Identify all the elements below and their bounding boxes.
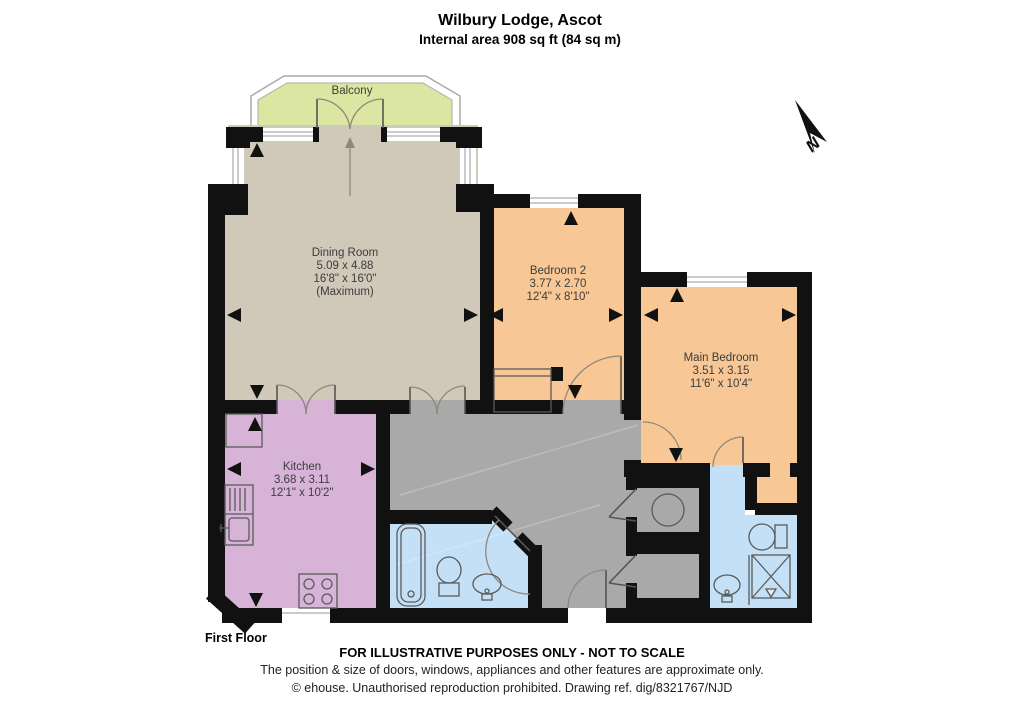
svg-text:(Maximum): (Maximum) bbox=[316, 286, 374, 298]
window bbox=[263, 128, 313, 141]
floor-label: First Floor bbox=[205, 631, 267, 645]
svg-text:3.68 x 3.11: 3.68 x 3.11 bbox=[274, 474, 330, 486]
svg-text:11'6" x 10'4": 11'6" x 10'4" bbox=[690, 378, 752, 390]
svg-text:Dining Room: Dining Room bbox=[312, 247, 378, 259]
footer-note: The position & size of doors, windows, a… bbox=[0, 663, 1024, 677]
room-bedroom-2 bbox=[482, 196, 640, 416]
window bbox=[228, 148, 244, 184]
front-door-opening bbox=[568, 608, 606, 623]
outside-mask bbox=[638, 118, 820, 274]
footer-copyright: © ehouse. Unauthorised reproduction proh… bbox=[0, 681, 1024, 695]
window bbox=[687, 272, 747, 287]
svg-text:12'4" x 8'10": 12'4" x 8'10" bbox=[526, 291, 589, 303]
wardrobe-stub bbox=[551, 367, 563, 381]
svg-text:Kitchen: Kitchen bbox=[283, 461, 321, 473]
window bbox=[387, 128, 440, 141]
balcony-label: Balcony bbox=[332, 85, 373, 97]
window bbox=[460, 148, 476, 184]
svg-text:3.51 x 3.15: 3.51 x 3.15 bbox=[693, 365, 750, 377]
floorplan-page: Wilbury Lodge, Ascot Internal area 908 s… bbox=[0, 0, 1024, 723]
dining-room-label: Dining Room 5.09 x 4.88 16'8" x 16'0" (M… bbox=[312, 247, 378, 298]
svg-text:12'1" x 10'2": 12'1" x 10'2" bbox=[270, 487, 333, 499]
svg-text:Bedroom 2: Bedroom 2 bbox=[530, 265, 586, 277]
room-kitchen bbox=[210, 400, 378, 623]
svg-text:3.77 x 2.70: 3.77 x 2.70 bbox=[530, 278, 587, 290]
outside-mask bbox=[478, 118, 648, 196]
floorplan-drawing: Balcony Dining Room 5.09 x 4.88 16'8" x … bbox=[0, 0, 1024, 723]
window bbox=[530, 194, 578, 208]
svg-text:5.09 x 4.88: 5.09 x 4.88 bbox=[317, 260, 374, 272]
svg-text:Main Bedroom: Main Bedroom bbox=[684, 352, 759, 364]
main-bedroom-label: Main Bedroom 3.51 x 3.15 11'6" x 10'4" bbox=[684, 352, 759, 390]
window bbox=[282, 608, 330, 623]
footer-disclaimer: FOR ILLUSTRATIVE PURPOSES ONLY - NOT TO … bbox=[0, 645, 1024, 660]
bedroom-2-label: Bedroom 2 3.77 x 2.70 12'4" x 8'10" bbox=[526, 265, 589, 303]
svg-text:16'8" x 16'0": 16'8" x 16'0" bbox=[313, 273, 376, 285]
outside-mask bbox=[200, 118, 228, 188]
